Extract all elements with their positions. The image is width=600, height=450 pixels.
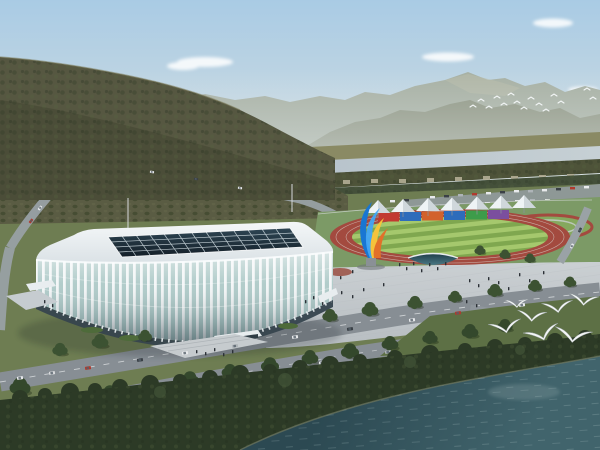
parked-car <box>444 195 449 197</box>
person <box>383 283 384 286</box>
scene-svg <box>0 0 600 450</box>
person <box>52 304 53 307</box>
parked-car <box>556 188 561 190</box>
person <box>429 263 430 266</box>
person <box>519 273 520 276</box>
parked-car <box>570 187 575 189</box>
person <box>476 304 477 307</box>
colored-panel <box>466 211 487 220</box>
person <box>413 262 414 265</box>
person <box>437 267 438 270</box>
person <box>478 284 479 287</box>
person <box>488 277 489 280</box>
parked-car <box>458 194 463 196</box>
person <box>313 296 314 299</box>
cloud <box>167 62 199 70</box>
person <box>223 353 224 356</box>
hedge <box>81 327 103 333</box>
hedge <box>119 335 141 341</box>
sculpture-pedestal <box>366 258 376 266</box>
parked-car <box>528 190 533 192</box>
parked-car <box>390 200 395 202</box>
person <box>214 348 215 351</box>
person <box>508 287 509 290</box>
colored-panel <box>378 213 399 222</box>
colored-panel <box>444 211 465 220</box>
building <box>427 178 434 182</box>
person <box>44 300 45 303</box>
building <box>343 180 350 184</box>
person <box>406 267 407 270</box>
rendering-canvas <box>0 0 600 450</box>
colored-panel <box>422 212 443 221</box>
building <box>371 179 378 183</box>
person <box>196 350 197 353</box>
person <box>205 352 206 355</box>
parked-car <box>486 192 491 194</box>
water-light-patch <box>488 384 560 400</box>
person <box>445 262 446 265</box>
person <box>466 300 467 303</box>
person <box>543 271 544 274</box>
parked-car <box>514 190 519 192</box>
hedge <box>278 323 298 329</box>
person <box>498 281 499 284</box>
person <box>352 270 353 273</box>
cloud <box>533 19 573 28</box>
person <box>363 288 364 291</box>
parked-car <box>500 191 505 193</box>
person <box>322 302 323 305</box>
tree-highlight <box>404 356 416 368</box>
parked-car <box>430 196 435 198</box>
tree-highlight <box>515 345 525 355</box>
tree-highlight <box>278 373 292 387</box>
person <box>399 263 400 266</box>
building <box>455 177 462 181</box>
tree-highlight <box>154 386 166 398</box>
person <box>352 295 353 298</box>
building <box>483 176 490 180</box>
parked-car <box>584 186 589 188</box>
person <box>341 291 342 294</box>
person <box>232 350 233 353</box>
cloud <box>422 53 474 62</box>
person <box>421 269 422 272</box>
colored-panel <box>488 210 509 219</box>
building <box>399 179 406 183</box>
person <box>305 300 306 303</box>
person <box>340 276 341 279</box>
parked-car <box>542 189 547 191</box>
person <box>529 279 530 282</box>
parked-car <box>472 193 477 195</box>
person <box>469 279 470 282</box>
